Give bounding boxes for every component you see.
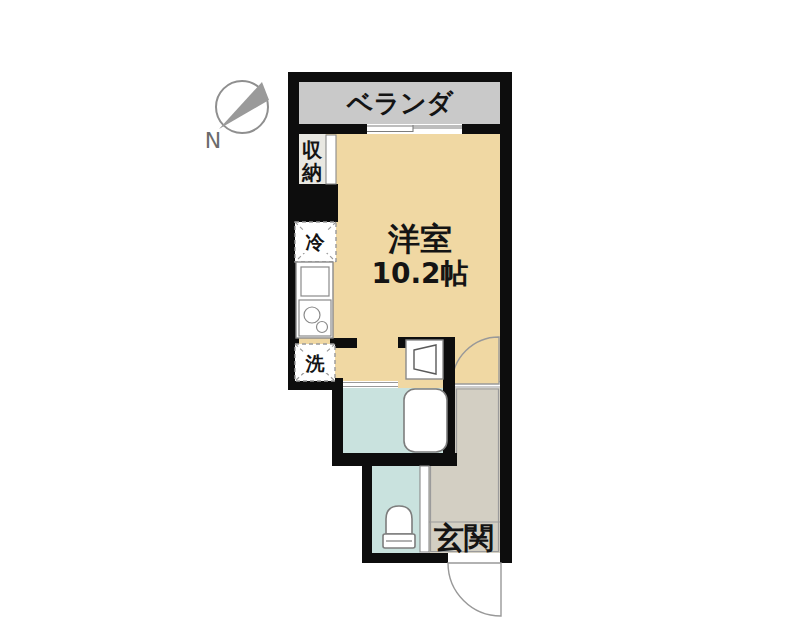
kitchen-unit: [296, 262, 333, 338]
entrance-hall-floor-upper: [455, 388, 500, 453]
toilet-icon: [383, 506, 415, 548]
toilet-door: [420, 466, 429, 552]
washer-label: 洗: [305, 352, 326, 374]
toilet-bowl: [386, 506, 412, 534]
main-room-size-label: 10.2帖: [371, 257, 468, 290]
wall-toilet-left: [362, 453, 372, 563]
stove-burner-large-icon: [304, 307, 320, 323]
kitchen-sink: [301, 267, 329, 296]
bathtub-icon: [404, 389, 447, 452]
floorplan-image: N ベランダ 収 納 冷 洗 洋室 10.2帖 玄関: [0, 0, 795, 636]
wall-bathroom-bottom: [332, 453, 457, 466]
storage-label-line1: 収: [302, 138, 323, 162]
wall-top: [288, 72, 512, 82]
compass-needle: [219, 82, 269, 129]
floorplan-svg: N ベランダ 収 納 冷 洗 洋室 10.2帖 玄関: [0, 0, 795, 636]
wall-right: [500, 72, 512, 563]
entrance-door-swing-icon: [448, 563, 501, 616]
main-room-label: 洋室: [387, 220, 452, 258]
wall-balcony-bottom-left: [299, 124, 367, 134]
stove-burner-small-icon: [317, 322, 328, 333]
balcony-label: ベランダ: [346, 88, 455, 118]
wall-bathroom-left: [332, 378, 343, 466]
storage-label-line2: 納: [301, 160, 322, 184]
washbasin-bowl-icon: [414, 345, 436, 374]
washbasin-unit: [406, 340, 443, 379]
compass-north-label: N: [205, 128, 221, 153]
entrance-label: 玄関: [433, 520, 494, 555]
refrigerator-label: 冷: [306, 231, 326, 253]
wall-block-below-storage: [288, 184, 338, 222]
storage-door: [326, 135, 336, 184]
compass-icon: N: [205, 81, 269, 153]
wall-balcony-bottom-right: [462, 124, 500, 134]
